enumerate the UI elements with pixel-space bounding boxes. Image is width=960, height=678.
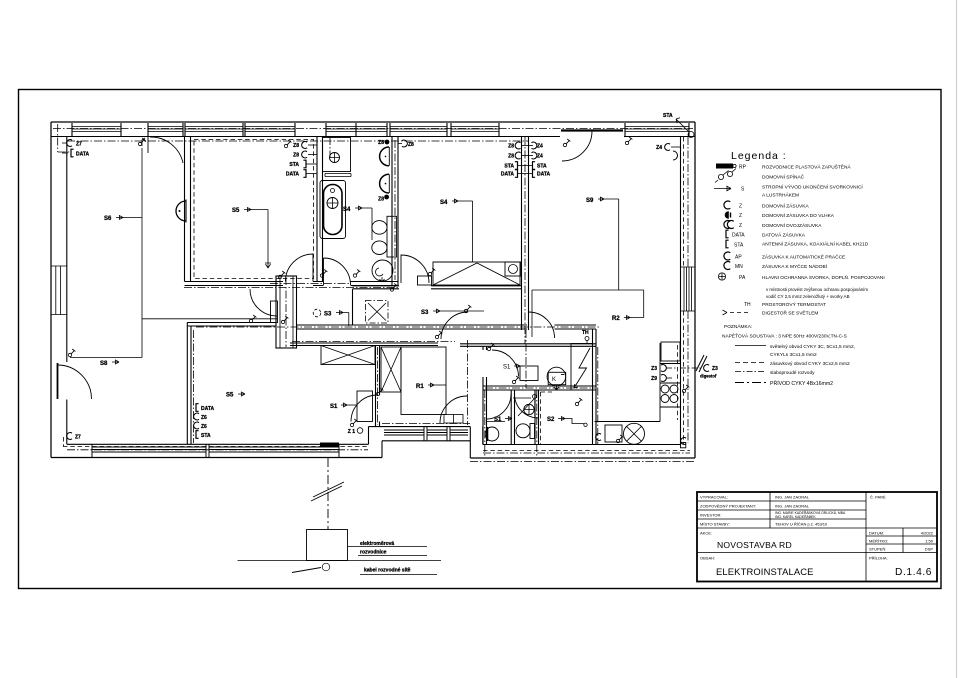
svg-text:DATA: DATA: [286, 172, 300, 178]
svg-text:R2: R2: [612, 316, 620, 322]
svg-text:STA: STA: [734, 243, 744, 249]
svg-text:Z8: Z8: [508, 144, 514, 150]
svg-text:S1: S1: [503, 365, 511, 371]
svg-text:NOVOSTAVBA RD: NOVOSTAVBA RD: [717, 540, 792, 550]
svg-text:Z: Z: [739, 223, 742, 229]
svg-text:PŘÍVOD CYKY 4Bx16mm2: PŘÍVOD CYKY 4Bx16mm2: [770, 379, 833, 387]
svg-text:Z4: Z4: [537, 144, 543, 150]
svg-text:v místnosti provést zvýšenou o: v místnosti provést zvýšenou ochranu pos…: [766, 287, 868, 292]
svg-text:ZODPOVĚDNÝ PROJEKTANT:: ZODPOVĚDNÝ PROJEKTANT:: [700, 504, 756, 509]
svg-text:ANTENNÍ ZÁSUVKA, KOAXIÁLNÍ KAB: ANTENNÍ ZÁSUVKA, KOAXIÁLNÍ KABEL KH21D: [762, 241, 869, 248]
svg-text:S4: S4: [440, 200, 448, 206]
svg-text:DATA: DATA: [201, 406, 215, 412]
svg-text:Z6: Z6: [201, 424, 207, 430]
svg-text:S9: S9: [586, 198, 594, 204]
svg-text:Z9: Z9: [651, 376, 657, 382]
svg-text:STUPEŇ:: STUPEŇ:: [869, 547, 886, 552]
svg-text:MÍSTO STAVBY:: MÍSTO STAVBY:: [700, 522, 730, 527]
svg-text:Z8: Z8: [508, 154, 514, 160]
svg-text:kabel rozvodné sítě: kabel rozvodné sítě: [364, 568, 411, 574]
svg-text:DATA: DATA: [76, 152, 90, 158]
svg-text:Z 1: Z 1: [348, 429, 355, 435]
svg-text:ZÁSUVKA K MYČCE NÁDOBÍ: ZÁSUVKA K MYČCE NÁDOBÍ: [762, 263, 828, 270]
svg-text:DIGESTOŘ SE SVĚTLEM: DIGESTOŘ SE SVĚTLEM: [762, 309, 818, 317]
svg-text:STA: STA: [663, 113, 673, 119]
svg-text:rozvodnice: rozvodnice: [360, 550, 387, 556]
svg-text:Z8: Z8: [293, 143, 299, 149]
svg-text:1:50: 1:50: [925, 539, 934, 544]
svg-text:Z7: Z7: [76, 142, 82, 148]
svg-text:R1: R1: [416, 384, 424, 390]
svg-text:zásuvkový obvod CYKY 3Cx2,5 mm: zásuvkový obvod CYKY 3Cx2,5 mm2: [770, 361, 850, 367]
svg-text:ING. JAN ZAORAL: ING. JAN ZAORAL: [775, 504, 810, 509]
svg-text:S1: S1: [330, 404, 338, 410]
svg-text:AP: AP: [735, 255, 742, 261]
svg-text:HLAVNI OCHRANNA SVORKA, DOPLŇ.: HLAVNI OCHRANNA SVORKA, DOPLŇ. POSPOJOVA…: [762, 274, 885, 281]
svg-text:TH: TH: [744, 302, 751, 308]
svg-text:POZNÁMKA:: POZNÁMKA:: [724, 323, 752, 330]
svg-text:ING. JAN ZAORAL: ING. JAN ZAORAL: [775, 495, 810, 500]
svg-text:DATA: DATA: [501, 172, 515, 178]
svg-text:S3: S3: [324, 312, 332, 318]
svg-text:Legenda :: Legenda :: [731, 150, 787, 162]
svg-text:TH: TH: [582, 330, 589, 336]
svg-text:MĚŘÍTKO:: MĚŘÍTKO:: [869, 539, 888, 544]
svg-text:DOMOVNÍ ZÁSUVKA: DOMOVNÍ ZÁSUVKA: [762, 203, 809, 210]
svg-text:DSP: DSP: [925, 547, 934, 552]
svg-text:INVESTOR:: INVESTOR:: [700, 513, 722, 518]
svg-text:Z4: Z4: [656, 145, 662, 151]
svg-text:STROPNÍ VÝVOD UKONČENÍ SVORKOV: STROPNÍ VÝVOD UKONČENÍ SVORKOVNICÍ: [762, 184, 863, 191]
svg-text:Z8: Z8: [378, 197, 384, 203]
svg-text:S2: S2: [547, 417, 555, 423]
svg-text:digestoř: digestoř: [700, 374, 717, 379]
svg-text:Z8: Z8: [293, 153, 299, 159]
svg-text:VYPRACOVAL:: VYPRACOVAL:: [700, 495, 728, 500]
svg-text:STA: STA: [201, 433, 211, 439]
svg-text:D.1.4.6: D.1.4.6: [895, 567, 932, 578]
svg-text:4/2022: 4/2022: [921, 531, 934, 536]
svg-text:AKCE:: AKCE:: [700, 531, 712, 536]
svg-text:S4: S4: [343, 207, 351, 213]
svg-text:STA: STA: [504, 164, 514, 170]
svg-text:Č. PARÉ: Č. PARÉ: [870, 495, 886, 500]
svg-text:Z3: Z3: [712, 366, 718, 372]
svg-text:MN: MN: [735, 264, 743, 270]
svg-text:elektroměrová: elektroměrová: [360, 541, 394, 547]
svg-text:ELEKTROINSTALACE: ELEKTROINSTALACE: [716, 566, 814, 577]
svg-text:NAPĚŤOVÁ SOUSTAVA : 3 NPE 50Hz: NAPĚŤOVÁ SOUSTAVA : 3 NPE 50Hz 400V/230V…: [722, 332, 847, 340]
svg-text:DATUM:: DATUM:: [869, 531, 884, 536]
svg-text:ROZVODNICE PLASTOVÁ ZAPUŠTĚNÁ: ROZVODNICE PLASTOVÁ ZAPUŠTĚNÁ: [762, 163, 851, 171]
svg-text:Z8: Z8: [378, 140, 384, 146]
svg-text:S3: S3: [421, 310, 429, 316]
svg-text:Z7: Z7: [75, 435, 81, 441]
svg-text:S6: S6: [104, 216, 112, 222]
svg-text:Z3: Z3: [651, 366, 657, 372]
svg-text:CYKYLs 3Cx1,5 mm2: CYKYLs 3Cx1,5 mm2: [770, 352, 817, 358]
svg-text:Z: Z: [739, 213, 742, 219]
svg-text:DOMOVNÍ ZÁSUVKA DO VLHKA: DOMOVNÍ ZÁSUVKA DO VLHKA: [762, 212, 835, 219]
svg-text:OBSAH:: OBSAH:: [700, 556, 715, 561]
svg-text:DOMOVNÍ SPÍNAČ: DOMOVNÍ SPÍNAČ: [762, 174, 805, 181]
svg-text:DATA: DATA: [537, 172, 551, 178]
svg-text:PA: PA: [739, 275, 746, 281]
svg-text:Z6: Z6: [201, 415, 207, 421]
svg-text:světelný obvod CYKY 3C, 5Cx1,5: světelný obvod CYKY 3C, 5Cx1,5 mm2,: [770, 344, 855, 350]
svg-text:slaboproudé rozvody: slaboproudé rozvody: [770, 370, 815, 376]
svg-text:S5: S5: [226, 393, 234, 399]
svg-text:DOMOVNÍ DVOJZÁSUVKA: DOMOVNÍ DVOJZÁSUVKA: [762, 222, 822, 229]
svg-text:Z: Z: [739, 204, 742, 210]
svg-text:S1: S1: [494, 417, 502, 423]
svg-text:vodič CY 2,5 mm2 zelenožlutý +: vodič CY 2,5 mm2 zelenožlutý + svorky AB: [766, 294, 850, 299]
svg-text:S: S: [741, 187, 745, 193]
svg-text:K: K: [552, 377, 556, 383]
svg-text:STA: STA: [289, 162, 299, 168]
svg-text:TEHOV U ŘÍČAN p.č. 453/10: TEHOV U ŘÍČAN p.č. 453/10: [775, 522, 828, 527]
svg-text:Z8: Z8: [408, 142, 414, 148]
svg-text:ING. KAREL KADEŘÁBEK: ING. KAREL KADEŘÁBEK: [775, 514, 816, 519]
svg-text:S5: S5: [232, 208, 240, 214]
svg-text:PROSTOROVÝ TERMOSTAT: PROSTOROVÝ TERMOSTAT: [762, 301, 826, 308]
svg-text:S8: S8: [100, 361, 108, 367]
svg-text:STA: STA: [537, 164, 547, 170]
svg-text:DATA: DATA: [732, 233, 745, 239]
svg-text:PŘÍLOHA:: PŘÍLOHA:: [869, 556, 888, 561]
svg-text:ZÁSUVKA K AUTOMATICKÉ PRAČCE: ZÁSUVKA K AUTOMATICKÉ PRAČCE: [762, 254, 845, 261]
svg-text:DATOVÁ ZÁSUVKA: DATOVÁ ZÁSUVKA: [762, 232, 806, 239]
svg-text:A LUSTRHÁKEM: A LUSTRHÁKEM: [762, 192, 799, 199]
svg-text:Z4: Z4: [537, 154, 543, 160]
svg-text:RP: RP: [739, 165, 747, 171]
